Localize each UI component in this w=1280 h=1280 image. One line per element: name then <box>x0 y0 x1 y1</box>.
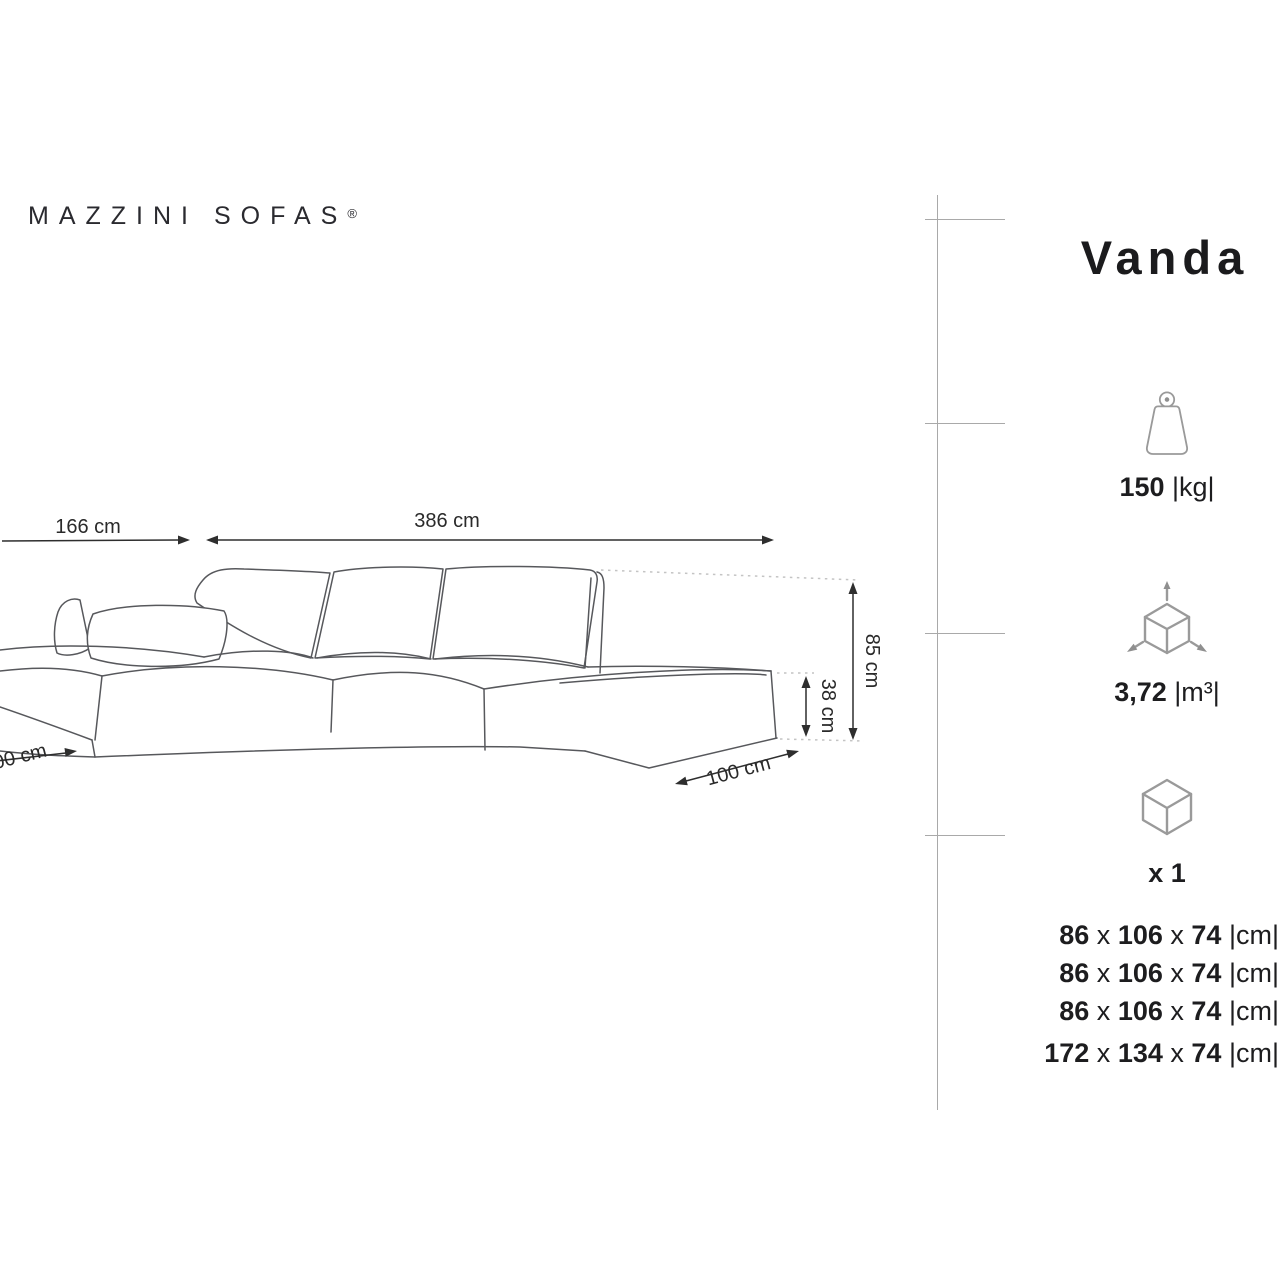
brand-logo: MAZZINISOFAS® <box>28 202 357 231</box>
module-width: 86 <box>1059 996 1089 1026</box>
dim-separator: x <box>1097 996 1111 1026</box>
dim-unit: |cm| <box>1229 996 1279 1026</box>
divider-tick <box>925 219 1005 220</box>
product-spec-sheet: MAZZINISOFAS® Vanda 166 cm 386 cm <box>0 0 1280 1280</box>
weight-number: 150 <box>1119 472 1164 502</box>
volume-number: 3,72 <box>1114 677 1167 707</box>
max-load-value: 150 |kg| <box>1047 472 1280 503</box>
module-width: 86 <box>1059 920 1089 950</box>
module-dimension-row: 86 x 106 x 74 |cm| <box>1044 916 1279 954</box>
brand-word-1: MAZZINI <box>28 202 198 230</box>
width-total-label: 386 cm <box>414 510 480 532</box>
module-dimension-row: 172 x 134 x 74 |cm| <box>1044 1034 1279 1072</box>
back-cushions <box>195 566 604 673</box>
ottoman-module <box>484 666 777 768</box>
dimension-height: 85 cm <box>849 582 881 740</box>
module-depth: 106 <box>1118 920 1163 950</box>
volume-cube-icon <box>1047 578 1280 658</box>
seat-height-label: 38 cm <box>817 679 839 733</box>
depth-left-label: 100 cm <box>0 740 49 777</box>
module-height: 74 <box>1191 996 1221 1026</box>
module-depth: 106 <box>1118 996 1163 1026</box>
dimension-width-total: 386 cm <box>206 510 774 545</box>
module-depth: 106 <box>1118 958 1163 988</box>
module-dimension-row: 86 x 106 x 74 |cm| <box>1044 954 1279 992</box>
brand-word-2: SOFAS <box>214 202 347 230</box>
dim-separator: x <box>1170 1038 1184 1068</box>
dimension-width-left: 166 cm <box>2 516 190 545</box>
module-height: 74 <box>1191 920 1221 950</box>
module-width: 172 <box>1044 1038 1089 1068</box>
dim-separator: x <box>1097 1038 1111 1068</box>
package-box-icon <box>1047 775 1280 837</box>
depth-right-label: 100 cm <box>704 752 773 790</box>
divider-line <box>937 195 938 1110</box>
dim-separator: x <box>1097 920 1111 950</box>
module-dimension-list: 86 x 106 x 74 |cm| 86 x 106 x 74 |cm| 86… <box>1044 916 1279 1072</box>
width-left-label: 166 cm <box>55 516 121 538</box>
module-dimension-row: 86 x 106 x 74 |cm| <box>1044 992 1279 1030</box>
divider-tick <box>925 835 1005 836</box>
height-label: 85 cm <box>861 634 880 688</box>
dim-separator: x <box>1170 920 1184 950</box>
dim-unit: |cm| <box>1229 1038 1279 1068</box>
dim-separator: x <box>1170 996 1184 1026</box>
module-height: 74 <box>1191 1038 1221 1068</box>
weight-icon <box>1047 389 1280 457</box>
module-width: 86 <box>1059 958 1089 988</box>
divider-tick <box>925 423 1005 424</box>
product-title: Vanda <box>1040 230 1280 285</box>
dimension-depth-left: 100 cm <box>0 740 77 777</box>
sofa-base <box>0 676 585 757</box>
module-depth: 134 <box>1118 1038 1163 1068</box>
package-quantity: x 1 <box>1047 858 1280 889</box>
dim-separator: x <box>1170 958 1184 988</box>
module-height: 74 <box>1191 958 1221 988</box>
weight-unit: |kg| <box>1172 472 1215 502</box>
dimension-depth-right: 100 cm <box>675 750 799 791</box>
dim-separator: x <box>1097 958 1111 988</box>
dim-unit: |cm| <box>1229 958 1279 988</box>
volume-unit: |m³| <box>1174 677 1220 707</box>
divider-tick <box>925 633 1005 634</box>
sofa-dimension-diagram: 166 cm 386 cm <box>0 500 880 810</box>
dimension-seat-height: 38 cm <box>802 676 840 737</box>
dim-unit: |cm| <box>1229 920 1279 950</box>
volume-value: 3,72 |m³| <box>1047 677 1280 708</box>
sofa-outline-drawing <box>0 566 777 768</box>
registered-trademark-symbol: ® <box>347 206 357 221</box>
quantity-value: x 1 <box>1148 858 1186 888</box>
